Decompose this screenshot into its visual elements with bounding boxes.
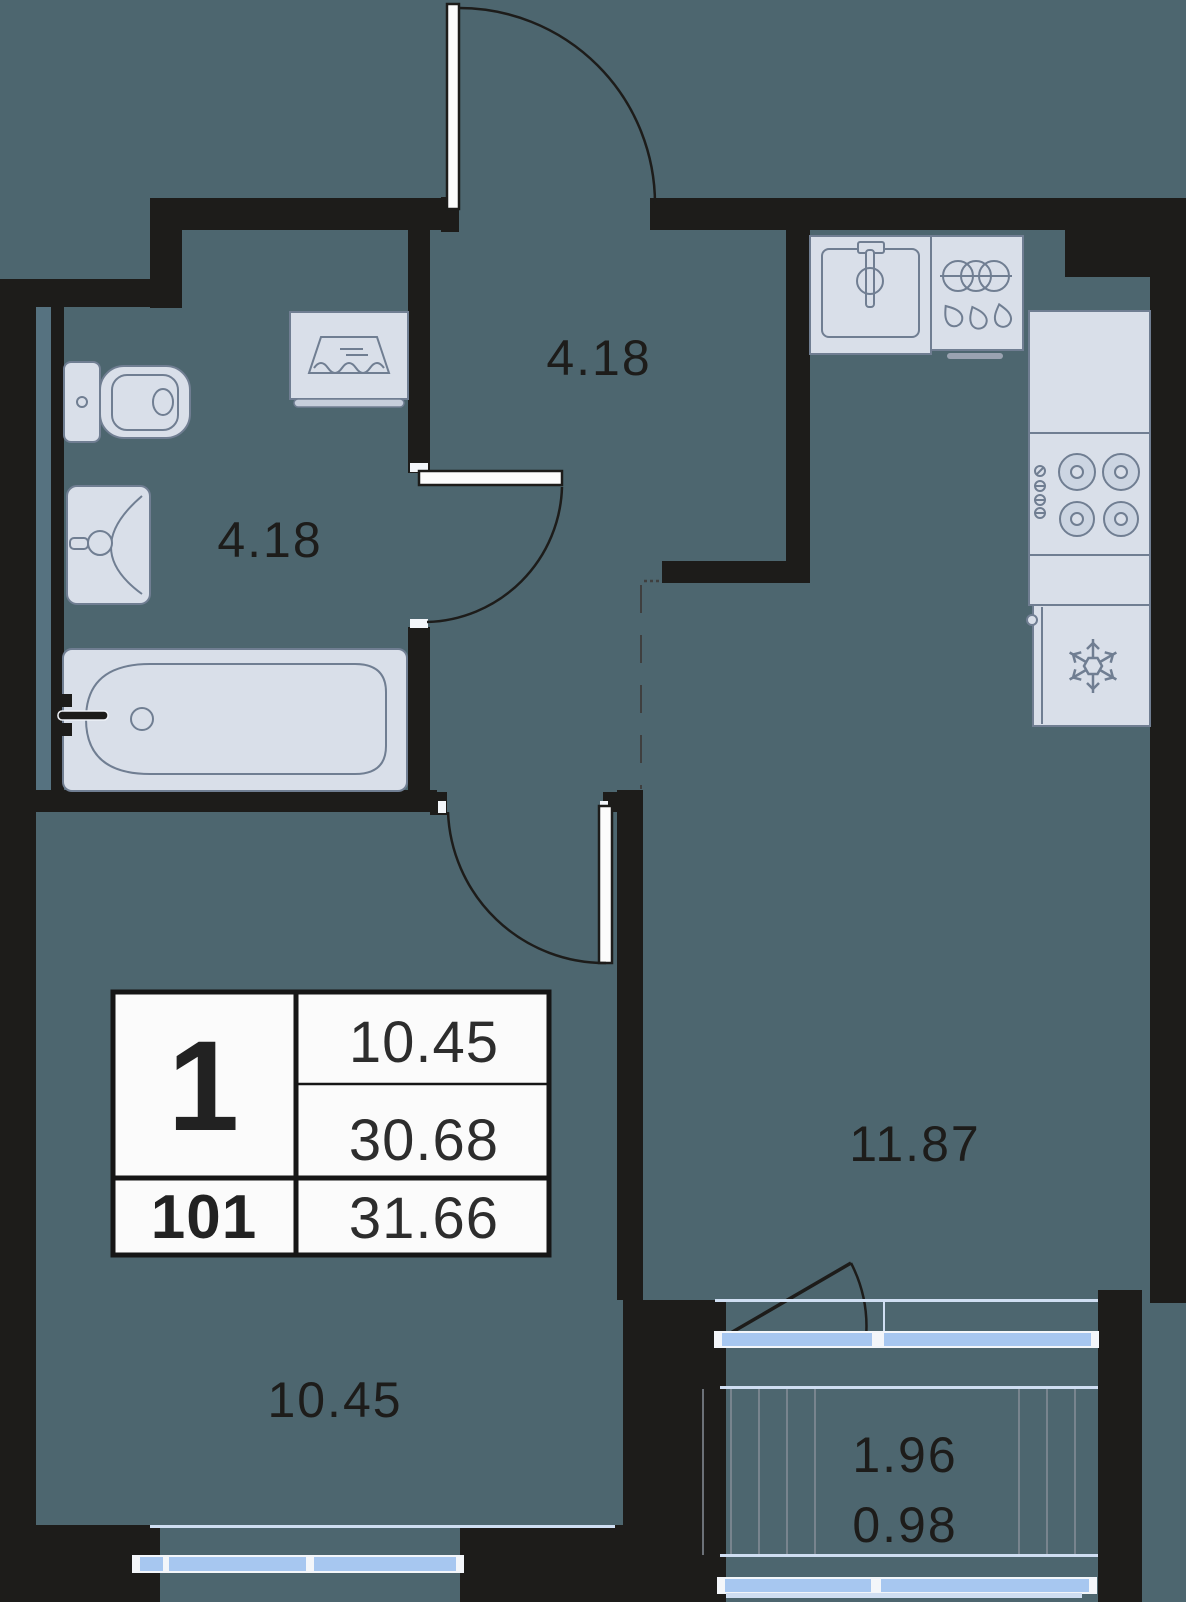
wall-top-kitchen xyxy=(650,198,1186,230)
balcony-reduced-area-label: 0.98 xyxy=(852,1497,957,1553)
wall-hall-kitchen-horizontal xyxy=(662,561,786,583)
kitchen-living-area-label: 11.87 xyxy=(849,1116,980,1172)
fridge-icon xyxy=(1027,605,1150,726)
balcony-window xyxy=(718,1578,1096,1598)
shaft-strip xyxy=(36,307,51,790)
wall-bathroom-bottom xyxy=(36,790,437,812)
bathroom-door-leaf xyxy=(419,471,562,485)
kitchen-window-glass xyxy=(715,1332,1098,1347)
bathroom-area-label: 4.18 xyxy=(217,512,322,568)
total-area-summer-value: 31.66 xyxy=(349,1186,499,1251)
bathtub-icon xyxy=(58,649,407,791)
wall-right-exterior xyxy=(1150,277,1186,1303)
kitchen-sink-icon xyxy=(810,236,931,354)
dish-rack-icon xyxy=(931,236,1023,359)
wall-top-left-stub xyxy=(150,198,182,308)
wall-balcony-right xyxy=(1098,1290,1142,1602)
balcony-window-glass xyxy=(718,1578,1096,1593)
wall-top-bathroom xyxy=(150,198,443,230)
entry-door-leaf xyxy=(447,4,459,209)
wall-bathroom-right-upper xyxy=(408,230,430,473)
rooms-count-value: 1 xyxy=(168,1015,240,1158)
wall-room-divider xyxy=(617,790,643,1300)
floor-plan-svg: 4.18 4.18 11.87 10.45 1.96 0.98 1 101 10… xyxy=(0,0,1186,1602)
balcony-area-label: 1.96 xyxy=(852,1427,957,1483)
living-area-value: 10.45 xyxy=(349,1010,499,1075)
wall-bathroom-right-lower xyxy=(408,627,430,790)
room-door-leaf xyxy=(599,806,612,963)
total-area-value: 30.68 xyxy=(349,1108,499,1173)
room-area-label: 10.45 xyxy=(267,1372,402,1428)
toilet-icon xyxy=(64,362,190,442)
floor-plan-canvas: 4.18 4.18 11.87 10.45 1.96 0.98 1 101 10… xyxy=(0,0,1186,1602)
hallway-area-label: 4.18 xyxy=(546,330,651,386)
wall-balcony-left xyxy=(623,1300,726,1602)
room-window-glass xyxy=(133,1556,463,1572)
cooktop-icon xyxy=(1029,433,1150,555)
wash-basin-icon xyxy=(67,486,150,604)
unit-number-value: 101 xyxy=(151,1183,257,1252)
wall-top-right-block xyxy=(1065,230,1186,277)
kitchen-counter-mid xyxy=(1029,555,1150,605)
wall-left-exterior xyxy=(0,279,36,1525)
wall-hall-kitchen-vertical xyxy=(786,230,810,583)
washing-machine-icon xyxy=(290,312,408,407)
kitchen-counter-top xyxy=(1029,311,1150,433)
info-card: 1 101 10.45 30.68 31.66 xyxy=(113,992,549,1255)
